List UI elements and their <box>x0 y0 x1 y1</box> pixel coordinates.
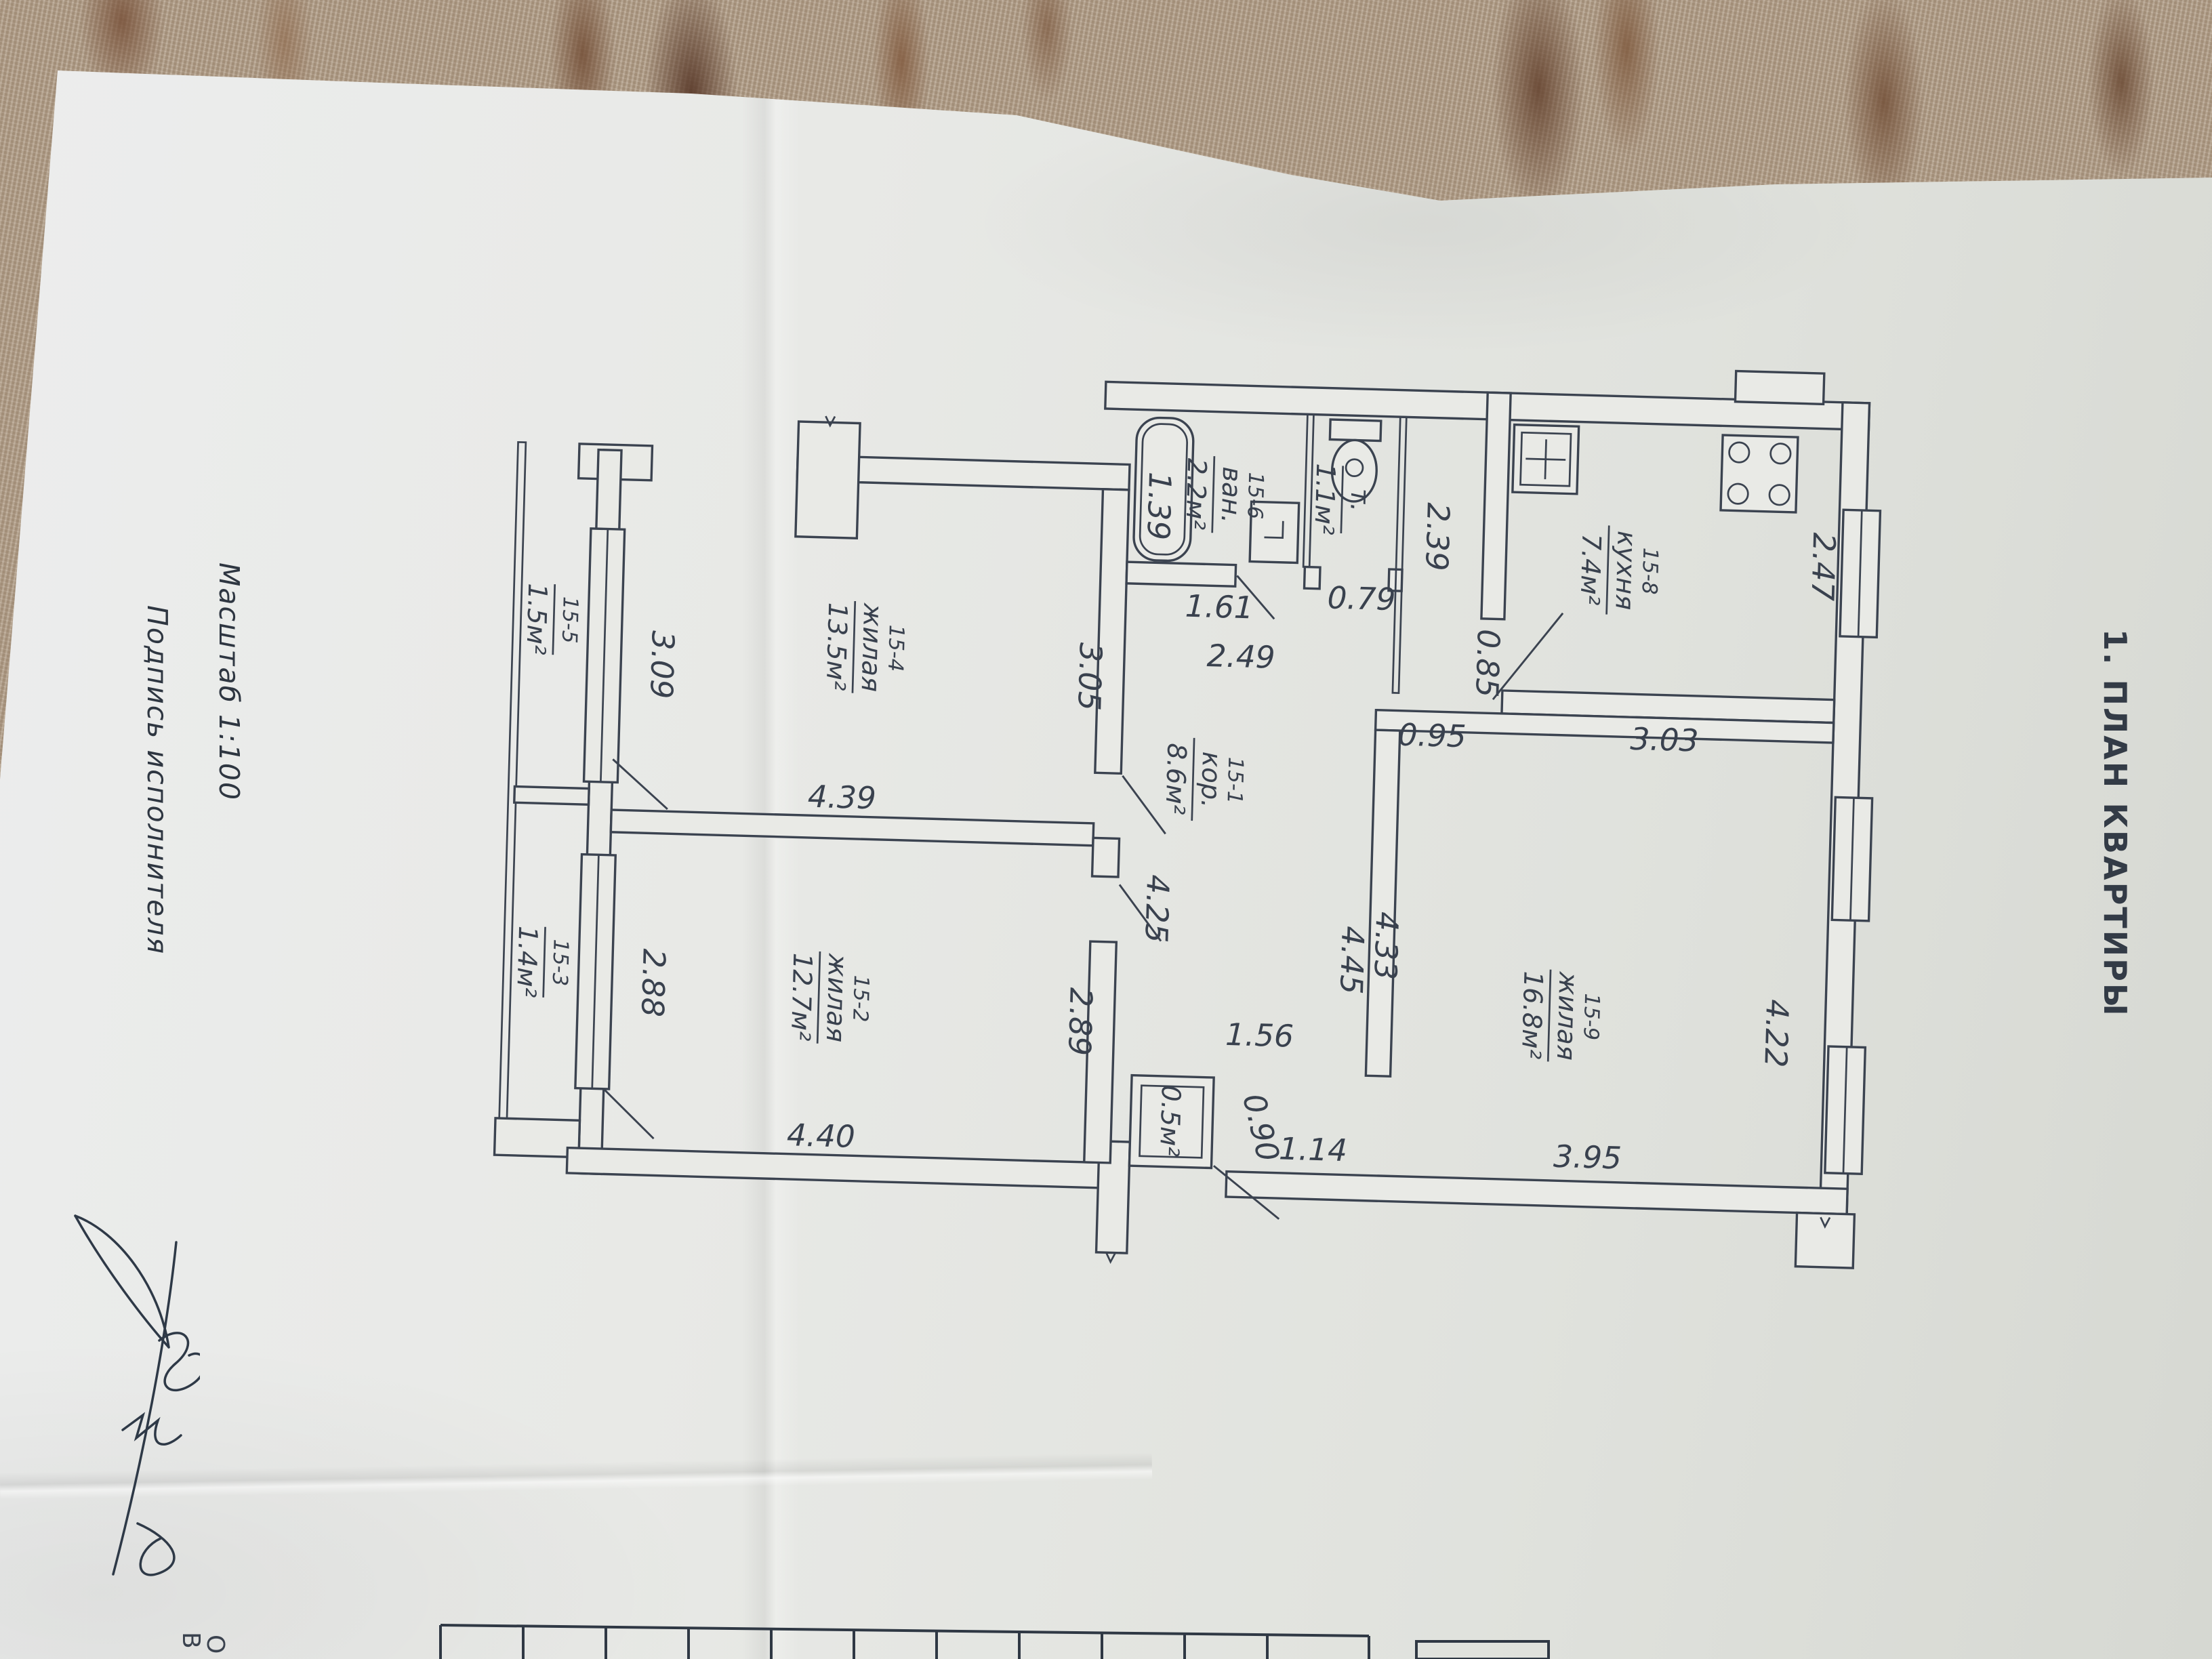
signature-stroke <box>138 1523 174 1575</box>
floor-plan: 2.47 2.39 1.39 3.05 3.09 2.88 2.89 4.25 … <box>447 329 1932 1382</box>
svg-text:2.2м²: 2.2м² <box>1179 458 1212 531</box>
dim-corridor-right-b: 4.33 <box>1367 912 1405 981</box>
room-label-living4: 15-4 жилая 13.5м² <box>820 600 909 695</box>
svg-text:т.: т. <box>1344 488 1375 512</box>
dim-entry-door: 0.85 <box>1469 629 1507 698</box>
svg-text:15-3: 15-3 <box>548 939 573 986</box>
signature <box>64 1205 200 1584</box>
dim-living4-depth: 3.05 <box>1071 642 1109 711</box>
dim-corridor-left: 4.25 <box>1138 874 1176 943</box>
signature-stroke <box>123 1415 181 1444</box>
dim-living2-depth: 2.89 <box>1061 987 1099 1056</box>
svg-text:1.5м²: 1.5м² <box>520 583 552 655</box>
dim-living4-width: 4.39 <box>807 779 876 817</box>
dim-kitchen-depth: 2.47 <box>1804 532 1842 601</box>
room-label-kitchen: 15-8 кухня 7.4м² <box>1574 525 1662 616</box>
dim-bath-front: 2.49 <box>1206 638 1275 676</box>
signature-stroke <box>75 1216 169 1347</box>
dim-entry-width: 0.95 <box>1397 717 1467 755</box>
dim-living9-depth: 4.22 <box>1757 999 1795 1068</box>
signature-stroke <box>75 1216 169 1347</box>
svg-text:13.5м²: 13.5м² <box>820 602 853 691</box>
svg-text:1.4м²: 1.4м² <box>510 926 543 998</box>
signature-stroke <box>159 1333 200 1390</box>
dim-wc-wall: 2.39 <box>1418 502 1456 571</box>
dim-wc-width: 0.79 <box>1327 579 1396 617</box>
svg-text:жилая: жилая <box>1551 970 1584 1061</box>
bottom-fragment-letter-b: В <box>177 1632 205 1649</box>
signature-stroke <box>113 1242 176 1574</box>
room-label-balcony5: 15-5 1.5м² <box>520 583 582 656</box>
svg-text:12.7м²: 12.7м² <box>785 952 818 1041</box>
bottom-fragment-letter-o: О <box>201 1635 229 1654</box>
room-label-balcony3: 15-3 1.4м² <box>510 926 573 999</box>
dim-living9-width: 3.95 <box>1553 1139 1622 1176</box>
svg-text:1.1м²: 1.1м² <box>1308 463 1340 535</box>
dim-balcony3-length: 2.88 <box>634 948 672 1017</box>
dim-bath-width: 1.61 <box>1185 588 1254 626</box>
svg-text:7.4м²: 7.4м² <box>1574 533 1606 606</box>
dim-closet-side: 1.14 <box>1279 1130 1348 1168</box>
room-label-corridor: 15-1 кор. 8.6м² <box>1159 737 1248 823</box>
svg-text:кухня: кухня <box>1609 531 1641 611</box>
svg-text:16.8м²: 16.8м² <box>1515 970 1549 1059</box>
svg-text:15-5: 15-5 <box>557 596 582 644</box>
svg-text:0.5м²: 0.5м² <box>1153 1084 1186 1157</box>
svg-text:ван.: ван. <box>1215 466 1247 524</box>
scale-label: Масштаб 1:100 <box>213 562 245 801</box>
svg-text:жилая: жилая <box>855 602 888 692</box>
dim-balcony5-length: 3.09 <box>643 630 681 699</box>
room-label-living2: 15-2 жилая 12.7м² <box>785 951 874 1045</box>
room-label-living9: 15-9 жилая 16.8м² <box>1515 968 1604 1063</box>
signature-caption: Подпись исполнителя <box>141 605 173 955</box>
dim-kitchen-width: 3.03 <box>1630 721 1699 759</box>
dim-bath-depth: 1.39 <box>1140 472 1178 541</box>
kitchen-sink-icon <box>1513 425 1579 494</box>
svg-text:жилая: жилая <box>820 953 853 1043</box>
photo-of-floor-plan-document: { "document": { "title": "1. ПЛАН КВАРТИ… <box>0 0 2212 1659</box>
stove-icon <box>1721 435 1798 512</box>
dim-closet-front: 1.56 <box>1225 1017 1294 1054</box>
page-title: 1. ПЛАН КВАРТИРЫ <box>2097 629 2133 1018</box>
svg-text:кор.: кор. <box>1195 751 1227 808</box>
room-label-closet: 0.5м² <box>1153 1084 1186 1157</box>
dim-living2-width: 4.40 <box>786 1117 855 1155</box>
dim-corridor-right-a: 4.45 <box>1333 926 1371 995</box>
bottom-table-fragment <box>420 1618 1606 1659</box>
svg-text:8.6м²: 8.6м² <box>1159 743 1191 815</box>
